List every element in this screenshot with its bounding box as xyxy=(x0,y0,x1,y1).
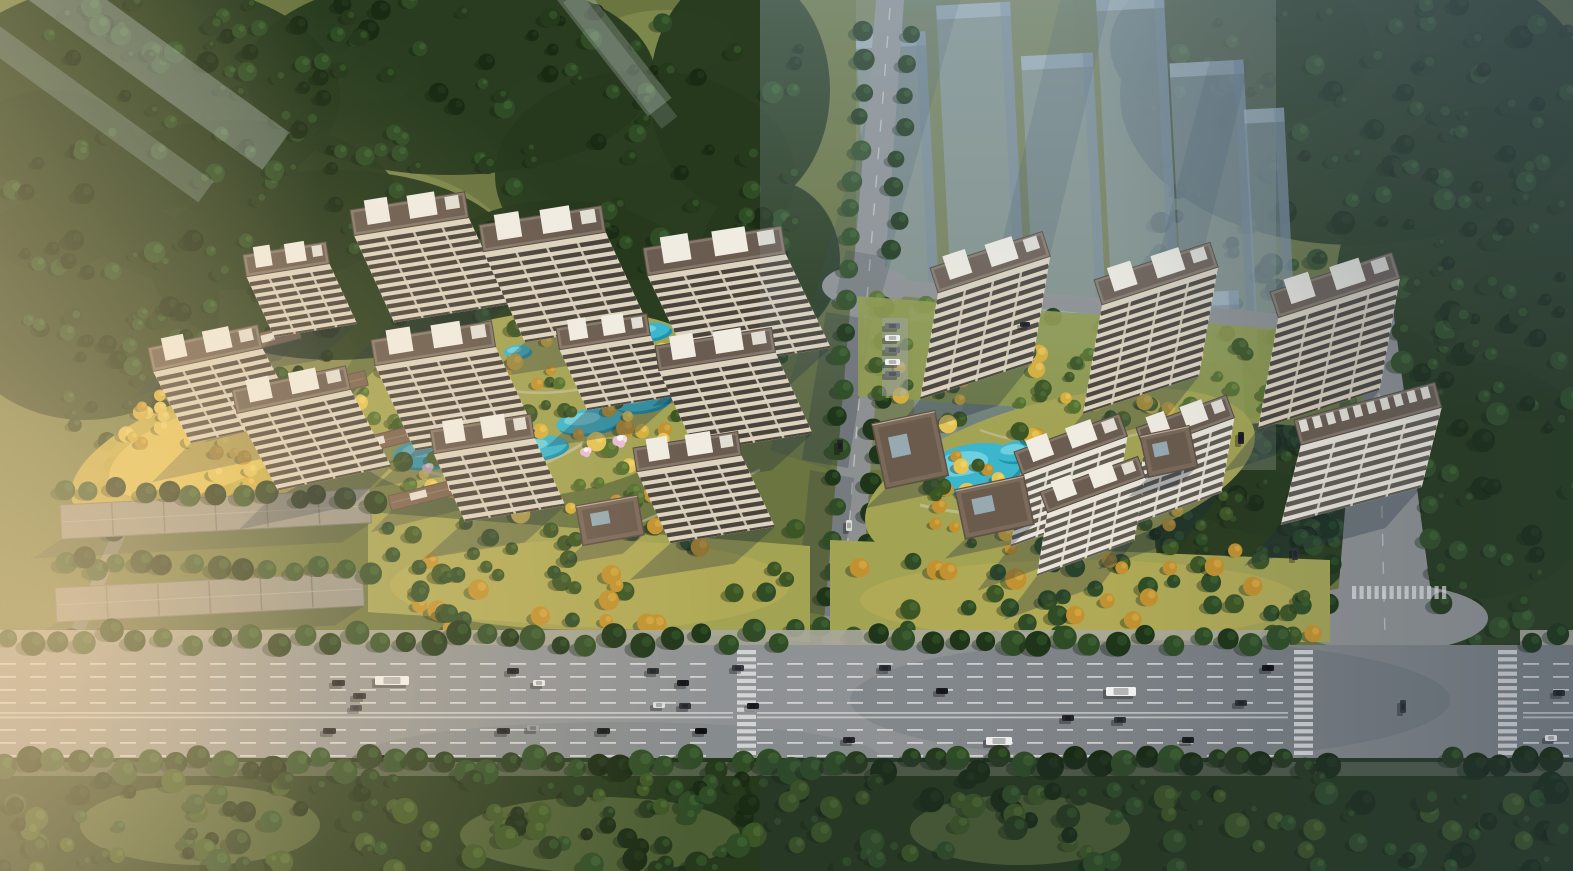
aerial-rendering-viewport xyxy=(0,0,1573,871)
aerial-rendering xyxy=(0,0,1573,871)
atmosphere-layer xyxy=(0,0,1573,871)
